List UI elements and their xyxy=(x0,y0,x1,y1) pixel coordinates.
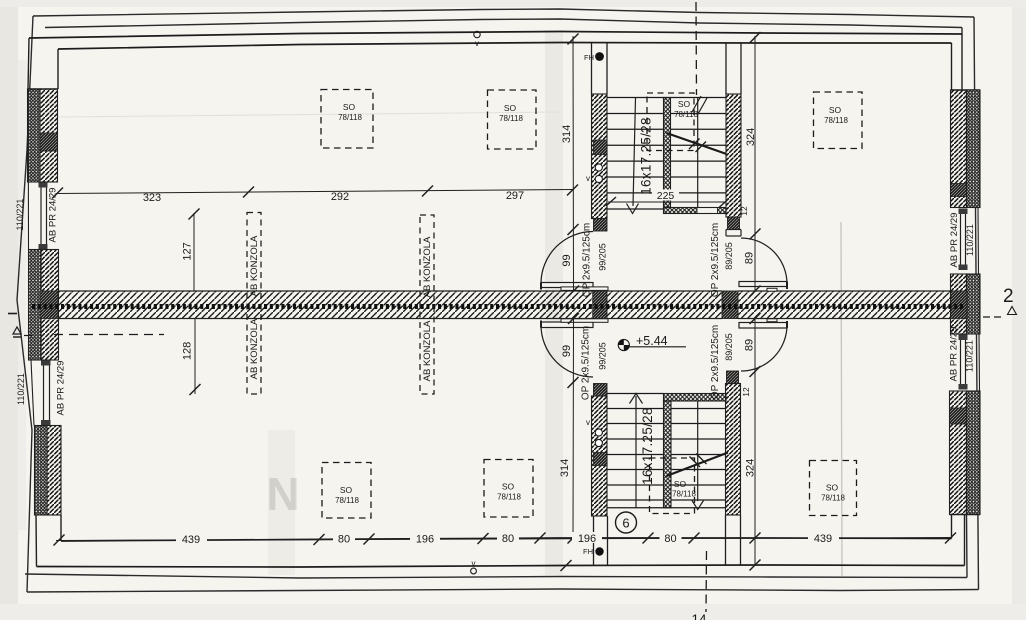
svg-text:297: 297 xyxy=(506,190,524,202)
svg-text:324: 324 xyxy=(745,128,757,146)
svg-text:AB PR 24/29: AB PR 24/29 xyxy=(949,213,960,268)
svg-text:80: 80 xyxy=(664,533,676,545)
svg-text:314: 314 xyxy=(559,459,571,477)
svg-text:78/118: 78/118 xyxy=(499,114,523,123)
svg-text:89/205: 89/205 xyxy=(724,333,734,361)
svg-text:314: 314 xyxy=(561,125,573,143)
svg-text:AB KONZOLA: AB KONZOLA xyxy=(249,318,260,379)
svg-text:110/221: 110/221 xyxy=(965,224,975,256)
svg-text:SO: SO xyxy=(829,105,842,115)
svg-text:78/118: 78/118 xyxy=(674,110,698,119)
svg-text:110/221: 110/221 xyxy=(16,373,26,405)
svg-text:16x17.25/28: 16x17.25/28 xyxy=(639,117,654,195)
svg-text:128: 128 xyxy=(182,342,194,360)
svg-text:FH: FH xyxy=(583,547,593,556)
svg-text:OP 2x9.5/125cm: OP 2x9.5/125cm xyxy=(710,223,721,297)
svg-text:78/118: 78/118 xyxy=(335,496,359,505)
svg-text:OP 2x9.5/125cm: OP 2x9.5/125cm xyxy=(582,223,593,297)
svg-text:SO: SO xyxy=(826,483,839,493)
svg-text:2: 2 xyxy=(1003,286,1014,307)
svg-text:16x17.25/28: 16x17.25/28 xyxy=(640,407,655,485)
svg-text:AB PR 24/29: AB PR 24/29 xyxy=(56,361,67,416)
svg-text:OP 2x9.5/125cm: OP 2x9.5/125cm xyxy=(581,326,592,400)
svg-text:SO: SO xyxy=(674,479,687,489)
svg-text:AB PR 24/29: AB PR 24/29 xyxy=(48,188,59,243)
svg-text:324: 324 xyxy=(745,459,757,477)
svg-text:110/221: 110/221 xyxy=(965,340,975,372)
svg-text:12: 12 xyxy=(741,387,751,397)
svg-text:99/205: 99/205 xyxy=(598,342,608,370)
svg-text:439: 439 xyxy=(182,534,200,546)
svg-text:80: 80 xyxy=(502,533,514,545)
svg-text:80: 80 xyxy=(338,534,350,546)
svg-text:SO: SO xyxy=(340,485,353,495)
svg-text:v: v xyxy=(472,559,476,568)
svg-text:AB KONZOLA: AB KONZOLA xyxy=(422,320,433,381)
svg-text:78/118: 78/118 xyxy=(821,494,845,503)
svg-text:v: v xyxy=(586,418,590,427)
svg-text:292: 292 xyxy=(331,191,349,203)
svg-text:110/221: 110/221 xyxy=(15,199,25,231)
svg-text:323: 323 xyxy=(143,192,161,204)
svg-text:78/118: 78/118 xyxy=(824,116,848,125)
svg-text:v: v xyxy=(586,174,590,183)
svg-text:6: 6 xyxy=(622,516,629,531)
svg-text:196: 196 xyxy=(416,534,434,546)
svg-text:SO: SO xyxy=(504,103,517,113)
svg-text:AB KONZOLA: AB KONZOLA xyxy=(249,235,260,296)
svg-text:99: 99 xyxy=(561,345,573,357)
svg-text:89: 89 xyxy=(744,339,756,351)
svg-text:+5.44: +5.44 xyxy=(636,334,668,348)
svg-text:99: 99 xyxy=(561,254,573,266)
svg-text:v: v xyxy=(475,39,479,48)
svg-text:78/118: 78/118 xyxy=(338,113,362,122)
svg-text:SO: SO xyxy=(678,99,691,109)
svg-text:127: 127 xyxy=(182,242,194,260)
svg-text:196: 196 xyxy=(578,533,596,545)
svg-text:89/205: 89/205 xyxy=(724,242,734,270)
svg-text:OP 2x9.5/125cm: OP 2x9.5/125cm xyxy=(710,325,721,399)
svg-text:78/118: 78/118 xyxy=(497,493,521,502)
svg-text:99/205: 99/205 xyxy=(598,243,608,271)
svg-text:439: 439 xyxy=(814,533,832,545)
svg-text:AB KONZOLA: AB KONZOLA xyxy=(422,236,433,297)
svg-text:SO: SO xyxy=(343,102,356,112)
svg-text:SO: SO xyxy=(502,482,515,492)
svg-text:FH: FH xyxy=(584,53,594,62)
svg-text:14: 14 xyxy=(691,612,707,620)
svg-text:225: 225 xyxy=(657,190,675,202)
svg-text:89: 89 xyxy=(744,252,756,264)
svg-text:N: N xyxy=(266,468,299,520)
svg-text:AB PR 24/29: AB PR 24/29 xyxy=(949,327,960,382)
svg-text:12: 12 xyxy=(739,206,749,216)
svg-text:78/118: 78/118 xyxy=(672,490,696,499)
